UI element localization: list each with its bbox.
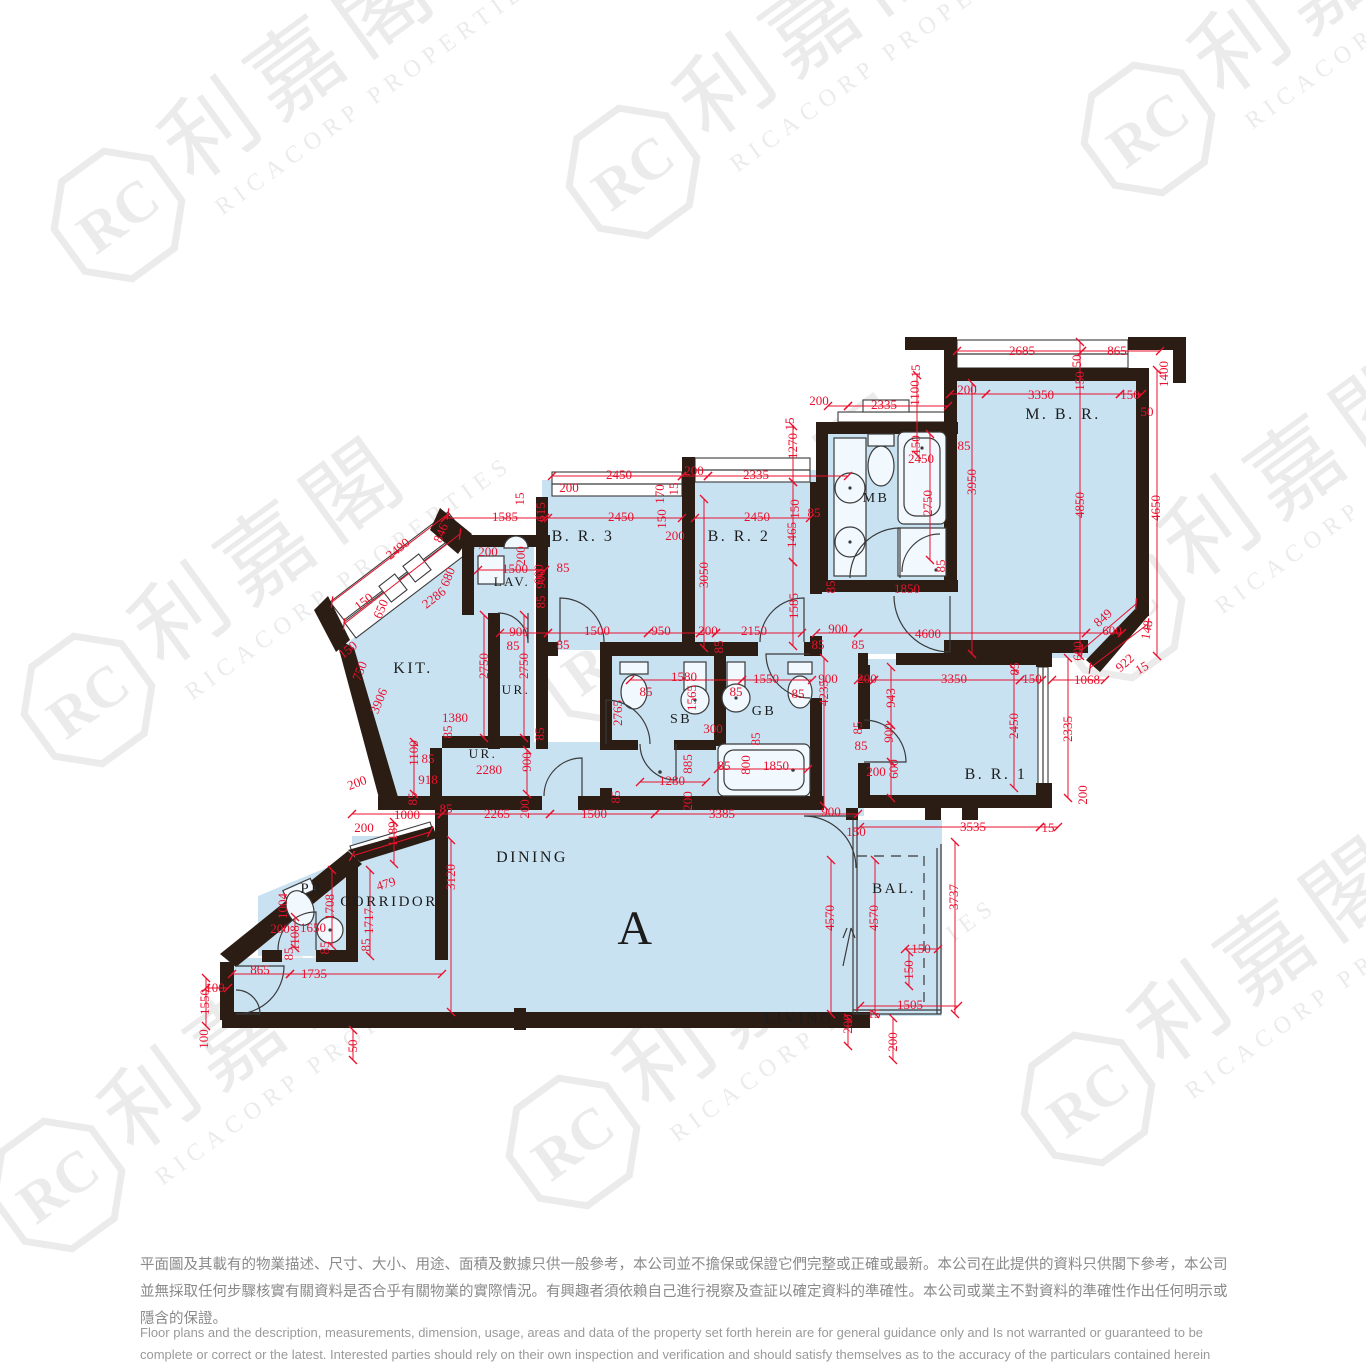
dimension-label: 2450: [608, 509, 634, 524]
dimension-label: 85: [440, 801, 453, 816]
dimension-label: 150: [1022, 671, 1042, 686]
room-label: B. R. 2: [708, 528, 771, 545]
dimension-label: 2265: [484, 806, 510, 821]
dimension-label: 1585: [786, 593, 801, 619]
dimension-label: 85: [812, 637, 825, 652]
dimension-label: 85: [730, 684, 743, 699]
dimension-label: 200: [809, 393, 829, 408]
dimension-label: 1550: [197, 989, 212, 1015]
dimension-label: 3350: [941, 671, 967, 686]
dimension-label: 85: [808, 505, 821, 520]
dimension-label: 900: [828, 621, 848, 636]
dimension-label: 200: [478, 544, 498, 559]
dimension-label: 85: [557, 560, 570, 575]
dimension-label: 1108: [287, 925, 302, 951]
dimension-label: 85: [405, 793, 420, 806]
dimension-label: 15: [666, 483, 681, 496]
dimension-label: 900: [509, 624, 529, 639]
dimension-label: 200: [857, 671, 877, 686]
dimension-label: 85: [533, 596, 548, 609]
dimension-label: 1380: [442, 710, 468, 725]
dimension-label: 865: [250, 962, 270, 977]
dimension-label: 4570: [866, 905, 881, 931]
room-label: UR.: [469, 746, 498, 761]
dimension-label: 200: [1075, 785, 1090, 805]
dimension-label: 4235: [816, 680, 831, 706]
room-label: LAV.: [494, 574, 531, 589]
dimension-label: 1565: [684, 685, 699, 711]
dimension-label: 885: [680, 754, 695, 774]
dimension-label: 150: [1072, 371, 1087, 391]
dimension-label: 1189: [385, 821, 400, 847]
dimension-label: 2750: [516, 653, 531, 679]
dimension-label: 148: [1137, 619, 1155, 641]
room-label: A: [617, 902, 654, 955]
dimension-label: 85: [422, 751, 435, 766]
dimension-label: 85: [852, 637, 865, 652]
dimension-label: 150: [911, 941, 931, 956]
dimension-label: 85: [557, 637, 570, 652]
dimension-label: 1100: [907, 380, 922, 406]
dimension-label: 200: [517, 799, 532, 819]
dimension-label: 2450: [744, 509, 770, 524]
dimension-label: 2750: [920, 490, 935, 516]
dimension-label: 4650: [1148, 495, 1163, 521]
dimension-label: 1280: [659, 773, 685, 788]
dimension-label: 85: [1007, 663, 1022, 676]
dimension-label: 85: [718, 758, 731, 773]
dimension-label: 3385: [709, 806, 735, 821]
dimension-label: 1585: [492, 509, 518, 524]
dimension-label: 2150: [741, 623, 767, 638]
dimension-label: 1400: [1156, 361, 1171, 387]
dimension-label: 1650: [300, 920, 326, 935]
dimension-label: 200: [885, 1032, 900, 1052]
dimension-label: 2450: [606, 467, 632, 482]
disclaimer-chinese: 平面圖及其載有的物業描述、尺寸、大小、用途、面積及數據只供一般參考，本公司並不擔…: [140, 1252, 1235, 1333]
dimension-label: 3737: [946, 884, 961, 911]
room-label: M. B. R.: [1025, 406, 1101, 423]
dimension-label: 3950: [964, 469, 979, 495]
dimension-label: 950: [651, 623, 671, 638]
dimension-label: 85: [958, 438, 971, 453]
dimension-label: 50: [1141, 404, 1154, 419]
dimension-label: 800: [738, 755, 753, 775]
dimension-label: 200: [684, 463, 704, 478]
dimension-label: 85: [358, 939, 373, 952]
dimension-label: 200: [866, 764, 886, 779]
sb-toilet-tank: [620, 662, 648, 674]
dimension-label: 1000: [394, 807, 420, 822]
dimension-label: 2450: [908, 451, 934, 466]
room-label: MB: [863, 491, 890, 506]
dimension-label: 200: [840, 1014, 855, 1034]
room-label: PR: [300, 881, 323, 897]
dimension-label: 2335: [743, 467, 769, 482]
dimension-label: 1068: [1074, 672, 1100, 687]
dimension-label: 900: [821, 804, 841, 819]
dimension-label: 100: [196, 1029, 211, 1049]
dimension-label: 1270: [785, 433, 800, 459]
disclaimer-english: Floor plans and the description, measure…: [140, 1322, 1235, 1366]
dimension-label: 50: [1069, 355, 1084, 368]
dimension-label: 918: [418, 772, 438, 787]
dimension-label: 900: [881, 723, 896, 743]
dimension-label: 600: [886, 759, 901, 779]
dimension-label: 150: [901, 960, 916, 980]
dimension-label: 1500: [581, 806, 607, 821]
dimension-label: 85: [507, 638, 520, 653]
dimension-label: 900: [519, 752, 534, 772]
dimension-label: 150: [1120, 387, 1140, 402]
dimension-label: 200: [354, 820, 374, 835]
dimension-label: 615: [533, 502, 548, 522]
dimension-label: 15: [512, 493, 527, 506]
dimension-label: 85: [440, 726, 455, 739]
dimension-label: 150: [654, 509, 669, 529]
dimension-label: 85: [640, 684, 653, 699]
mb-toilet-icon: [868, 446, 894, 486]
dimension-label: 943: [883, 688, 898, 708]
dimension-label: 1550: [753, 671, 779, 686]
dimension-label: 4850: [1072, 492, 1087, 518]
room-label: UR.: [502, 682, 531, 697]
dimension-label: 85: [281, 948, 296, 961]
dimension-label: 2450: [1006, 713, 1021, 739]
dimension-label: 150: [846, 824, 866, 839]
dimension-label: 4600: [915, 626, 941, 641]
dimension-label: 50: [345, 1040, 360, 1053]
mb-toilet-tank: [868, 434, 894, 446]
dimension-label: 1004: [275, 893, 290, 920]
dimension-label: 200: [957, 382, 977, 397]
gb-toilet-tank: [788, 662, 812, 674]
dimension-label: 865: [1107, 343, 1127, 358]
room-label: LIVING: [764, 1010, 834, 1027]
room-label: KIT.: [393, 660, 432, 677]
room-label: DINING: [496, 849, 568, 866]
dimension-label: 2765: [610, 700, 625, 726]
dimension-label: 15: [908, 365, 923, 378]
dimension-label: 3120: [443, 864, 458, 890]
dimension-label: 15: [868, 1006, 881, 1021]
dimension-label: 1500: [584, 623, 610, 638]
dimension-label: 85: [608, 791, 623, 804]
dimension-label: 3535: [960, 819, 986, 834]
dimension-label: 1505: [897, 997, 923, 1012]
room-label: GB: [752, 704, 776, 719]
dimension-label: 15: [782, 418, 797, 431]
dimension-label: 15: [1042, 820, 1055, 835]
dimension-label: 85: [933, 560, 948, 573]
dimension-label: 1465: [784, 522, 799, 548]
room-label: B. R. 1: [965, 766, 1028, 783]
dimension-label: 200: [665, 528, 685, 543]
dimension-label: 85: [850, 722, 865, 735]
room-label: CORRIDOR: [340, 894, 438, 910]
dimension-label: 600: [1070, 641, 1085, 661]
dimension-label: 85: [748, 733, 763, 746]
dimension-label: 3350: [1028, 387, 1054, 402]
dimension-label: 85: [855, 738, 868, 753]
dimension-label: 1735: [301, 966, 327, 981]
dimension-label: 200: [698, 623, 718, 638]
dimension-label: 300: [703, 721, 723, 736]
dimension-label: 1100: [406, 740, 421, 766]
dimension-label: 85: [792, 686, 805, 701]
dimension-label: 3050: [696, 562, 711, 588]
dimension-label: 2335: [871, 397, 897, 412]
dimension-label: 150: [787, 499, 802, 519]
dimension-label: 170: [652, 484, 667, 504]
dimension-label: 85: [823, 581, 838, 594]
floor-plan-page: RC 利嘉閣 RICACORP PROPERTIES: [0, 0, 1366, 1366]
dimension-label: 1850: [894, 581, 920, 596]
room-label: BAL.: [872, 881, 916, 897]
dimension-label: 85: [711, 641, 726, 654]
dimension-label: 4570: [822, 905, 837, 931]
dimension-label: 1850: [763, 758, 789, 773]
dimension-label: 200: [559, 480, 579, 495]
dimension-label: 200: [680, 791, 695, 811]
dimension-label: 1717: [361, 908, 376, 935]
floor-plan-drawing: RC 利嘉閣 RICACORP PROPERTIES: [0, 0, 1366, 1366]
dimension-label: 2685: [1009, 343, 1035, 358]
room-label: B. R. 3: [552, 528, 615, 545]
dimension-label: 1580: [671, 669, 697, 684]
dimension-label: 1708: [322, 894, 337, 920]
room-label: SB: [670, 712, 692, 727]
dimension-label: 85: [317, 942, 332, 955]
dimension-label: 85: [532, 728, 547, 741]
dimension-label: 2280: [476, 762, 502, 777]
dimension-label: 2335: [1060, 716, 1075, 742]
dimension-label: 200: [345, 772, 368, 793]
dimension-label: 2750: [476, 653, 491, 679]
dimension-label: 900: [533, 569, 548, 589]
